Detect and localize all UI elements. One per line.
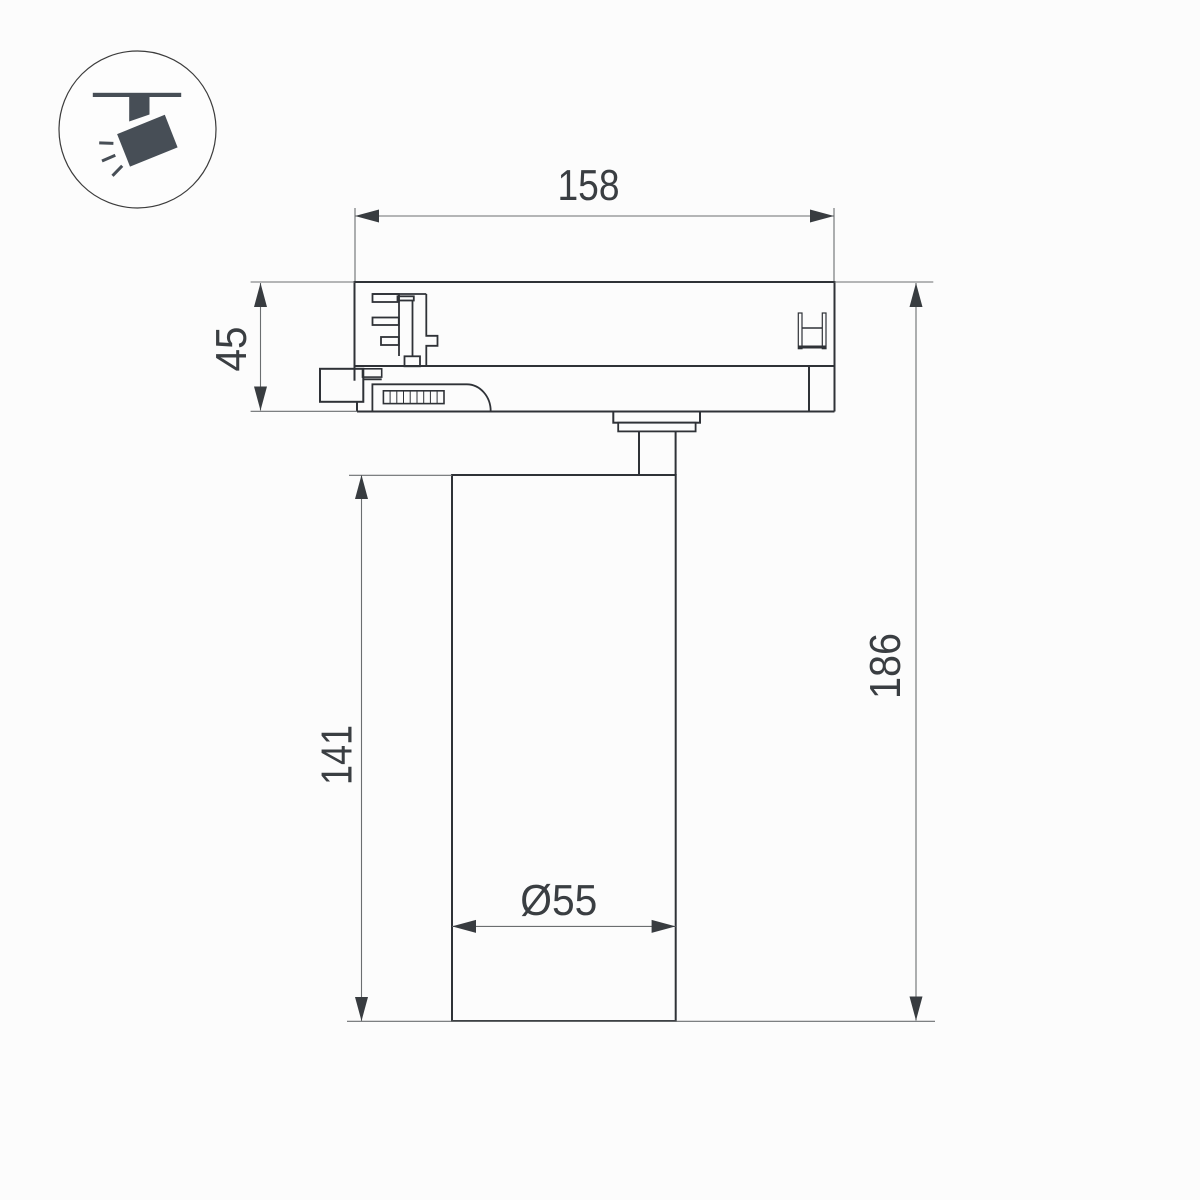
svg-text:158: 158 <box>558 162 620 210</box>
svg-text:Ø55: Ø55 <box>520 877 597 925</box>
svg-text:45: 45 <box>208 327 256 372</box>
svg-text:141: 141 <box>313 725 361 785</box>
svg-text:186: 186 <box>862 633 910 699</box>
